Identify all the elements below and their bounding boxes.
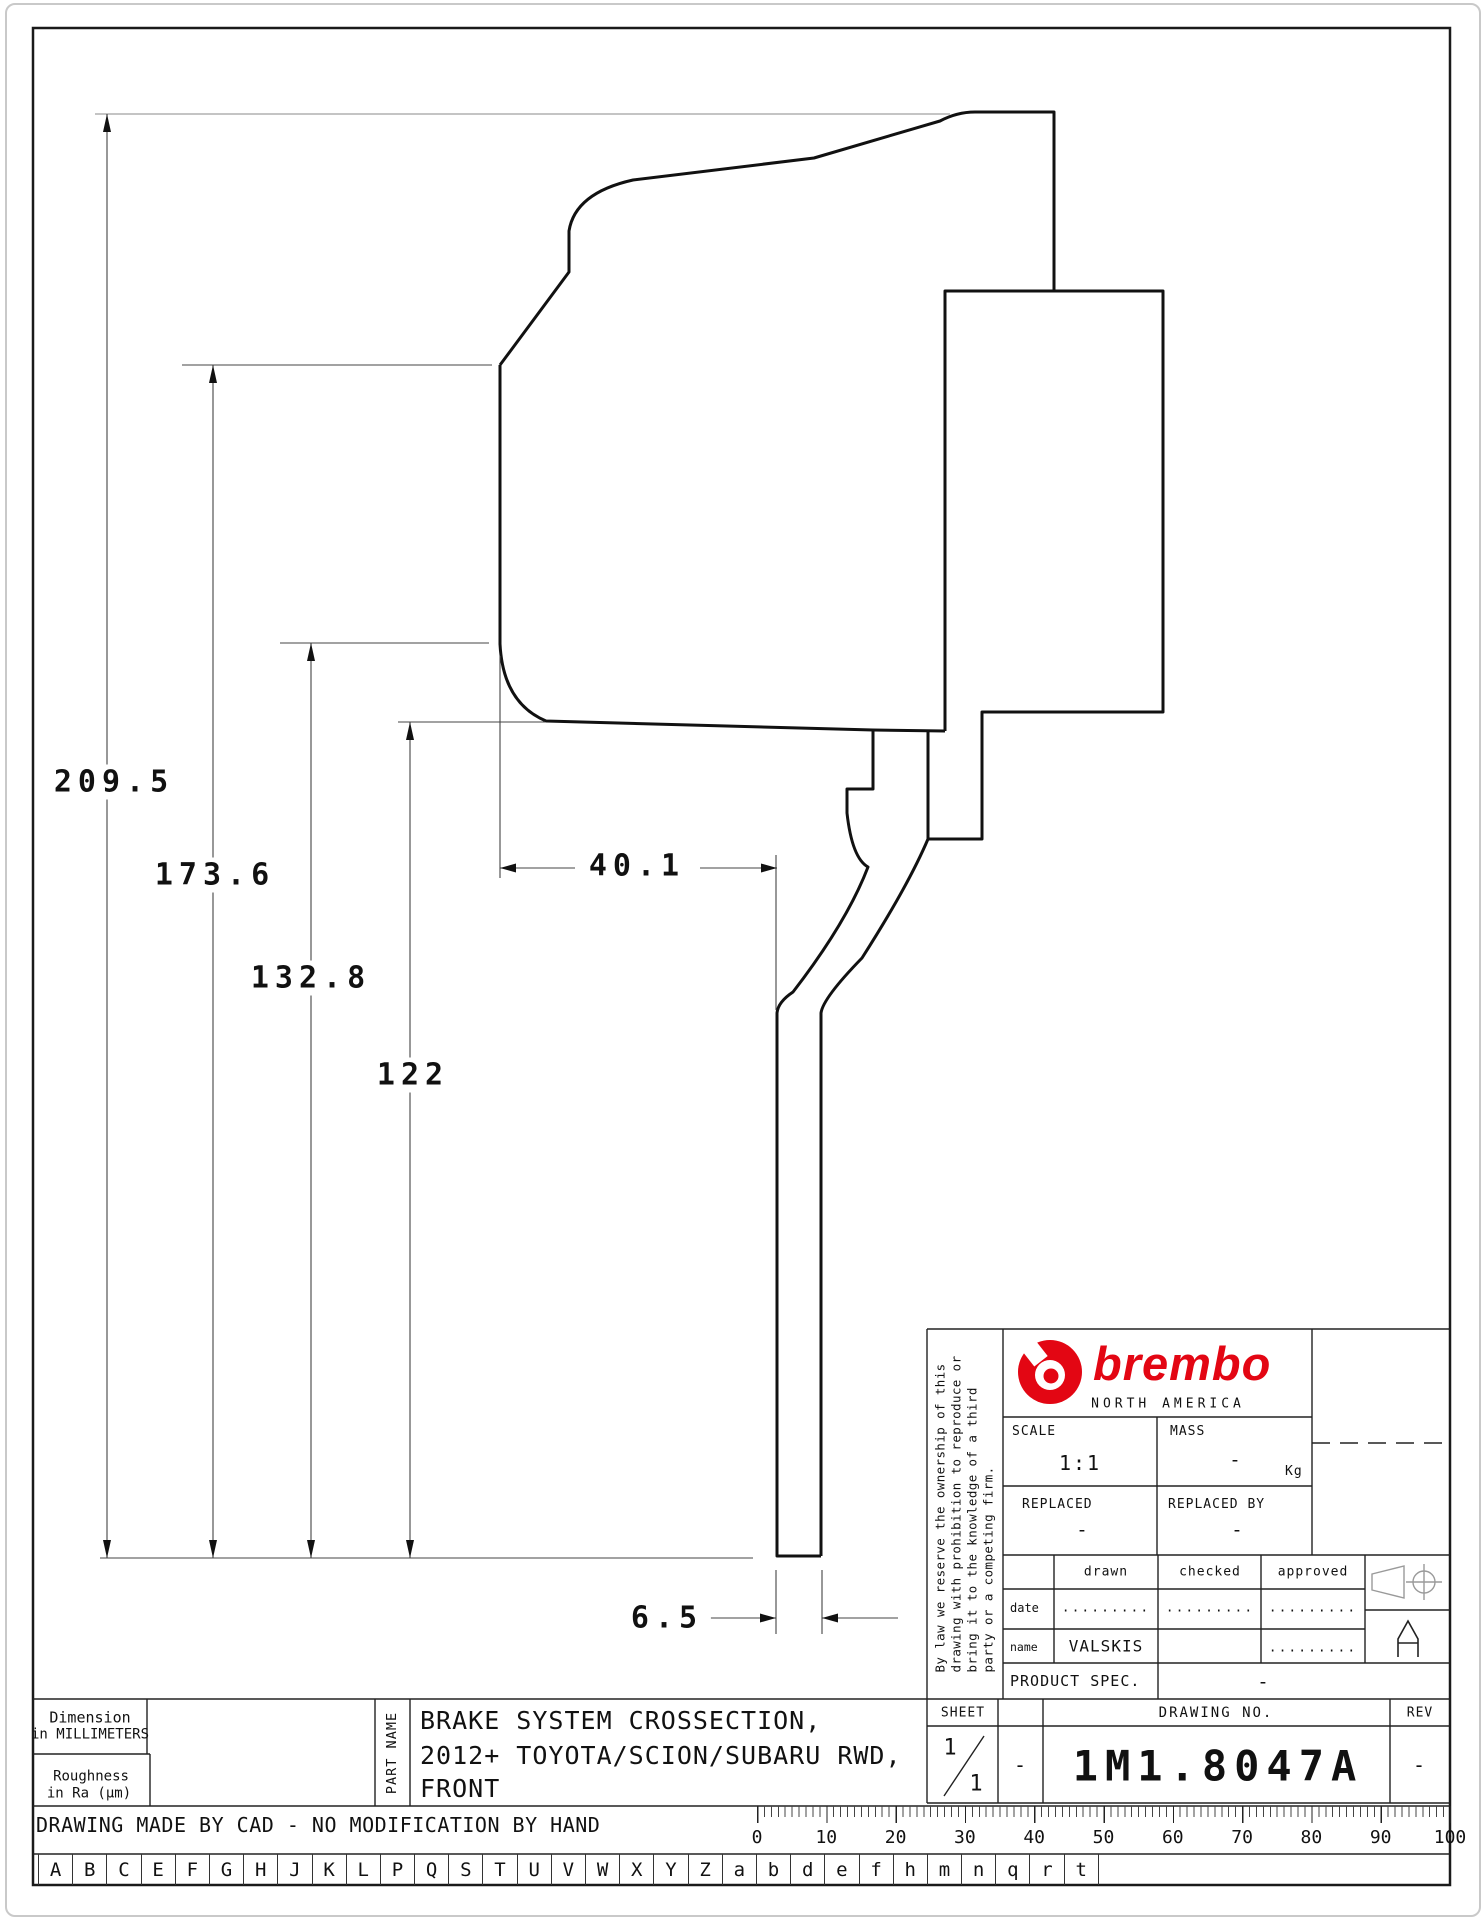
ruler-label: 90 [1351,1827,1411,1848]
date-approved-value: ......... [1269,1601,1357,1616]
dimension-note-line2: in MILLIMETERS [31,1727,149,1744]
product-spec-label: PRODUCT SPEC. [1010,1672,1140,1690]
ruler-label: 40 [1004,1827,1064,1848]
dim-label-132-8: 132.8 [243,961,379,996]
approved-column-header: approved [1278,1565,1349,1580]
name-row-label: name [1010,1640,1038,1654]
dimension-note-line1: Dimension [49,1710,130,1727]
drawing-canvas-svg [0,0,1484,1920]
letter-cell: F [176,1854,210,1885]
cad-drawing-sheet: 209.5 173.6 132.8 122 40.1 6.5 By law we… [0,0,1484,1920]
roughness-note-line1: Roughness [53,1769,129,1786]
checked-column-header: checked [1179,1565,1241,1580]
letter-cell: t [1065,1854,1099,1885]
letter-cell: L [347,1854,381,1885]
ruler-label: 10 [796,1827,856,1848]
name-drawn-value: VALSKIS [1069,1637,1143,1656]
date-checked-value: ......... [1166,1601,1254,1616]
part-name-strip: PART NAME [375,1699,410,1806]
part-name-label: PART NAME [385,1711,401,1793]
dim-label-173-6: 173.6 [147,858,283,893]
letter-cell: P [381,1854,415,1885]
legal-line: By law we reserve the ownership of this [933,1355,949,1672]
mass-unit: Kg [1285,1464,1303,1479]
letter-cell: r [1030,1854,1064,1885]
ruler-label: 60 [1143,1827,1203,1848]
brembo-region-label: NORTH AMERICA [1091,1397,1245,1412]
date-row-label: date [1010,1601,1039,1615]
replaced-by-label: REPLACED BY [1168,1497,1265,1512]
revision-letter-row: ABCEFGHJKLPQSTUVWXYZabdefhmnqrt [38,1854,1099,1885]
sheet-total: 1 [969,1772,982,1797]
drawing-no-label: DRAWING NO. [1159,1705,1274,1721]
part-name-line3: FRONT [420,1774,500,1803]
date-drawn-value: ......... [1062,1601,1150,1616]
letter-cell: Y [654,1854,688,1885]
product-spec-value: - [1257,1671,1268,1693]
ruler-labels: 0102030405060708090100 [757,1827,1457,1845]
ruler-major-ticks [757,1806,1451,1823]
roughness-note-line2: in Ra (µm) [47,1786,131,1803]
scale-value: 1:1 [1059,1451,1101,1475]
letter-cell: H [244,1854,278,1885]
letter-cell: B [73,1854,107,1885]
letter-cell: d [791,1854,825,1885]
sheet-dash: - [1014,1753,1028,1777]
letter-cell: q [996,1854,1030,1885]
ruler-label: 20 [866,1827,926,1848]
legal-line: drawing with prohibition to reproduce or [949,1355,965,1672]
replaced-label: REPLACED [1022,1497,1093,1512]
part-outline [500,112,1163,1556]
legal-line: bring it to the knowledge of a third [965,1355,981,1672]
legal-line: party or a competing firm. [981,1355,997,1672]
rev-value: - [1413,1753,1427,1777]
part-name-line2: 2012+ TOYOTA/SCION/SUBARU RWD, [420,1741,902,1770]
projection-symbol-icon [1372,1564,1442,1600]
dim-label-40-1: 40.1 [581,849,693,884]
letter-cell: U [518,1854,552,1885]
dim-label-6-5: 6.5 [623,1601,711,1636]
drawn-column-header: drawn [1084,1565,1128,1580]
letter-cell: b [757,1854,791,1885]
ruler-label: 100 [1420,1827,1480,1848]
legal-notice: By law we reserve the ownership of this … [927,1329,1003,1699]
letter-cell: V [552,1854,586,1885]
ruler-label: 50 [1074,1827,1134,1848]
letter-cell: a [723,1854,757,1885]
replaced-value: - [1076,1519,1087,1541]
rev-label: REV [1407,1706,1433,1721]
name-approved-value: ......... [1269,1641,1357,1656]
letter-cell: X [620,1854,654,1885]
letter-cell: A [39,1854,73,1885]
sheet-current: 1 [943,1736,956,1761]
dim-label-209-5: 209.5 [46,765,182,800]
letter-cell: h [894,1854,928,1885]
letter-cell: n [962,1854,996,1885]
dim-label-122: 122 [369,1058,457,1093]
letter-cell: m [928,1854,962,1885]
mass-value: - [1229,1449,1240,1471]
brembo-wordmark: brembo [1093,1336,1271,1391]
letter-cell: E [142,1854,176,1885]
ruler-label: 30 [935,1827,995,1848]
part-name-line1: BRAKE SYSTEM CROSSECTION, [420,1706,821,1735]
ruler-label: 0 [727,1827,787,1848]
replaced-by-value: - [1231,1519,1242,1541]
drawing-no-value: 1M1.8047A [1073,1742,1364,1791]
letter-cell: J [278,1854,312,1885]
letter-cell: W [586,1854,620,1885]
letter-cell: C [107,1854,141,1885]
ruler-label: 70 [1212,1827,1272,1848]
letter-cell: e [825,1854,859,1885]
letter-cell: S [449,1854,483,1885]
scale-label: SCALE [1012,1424,1056,1439]
cad-note: DRAWING MADE BY CAD - NO MODIFICATION BY… [36,1813,600,1837]
mass-label: MASS [1170,1424,1205,1439]
letter-cell: Q [415,1854,449,1885]
sheet-label: SHEET [941,1706,985,1721]
ruler-label: 80 [1281,1827,1341,1848]
letter-cell: T [483,1854,517,1885]
letter-cell: Z [689,1854,723,1885]
surface-symbol-icon [1398,1621,1418,1657]
letter-cell: K [313,1854,347,1885]
brembo-logo-icon [1017,1334,1082,1404]
letter-cell: f [860,1854,894,1885]
letter-cell: G [210,1854,244,1885]
